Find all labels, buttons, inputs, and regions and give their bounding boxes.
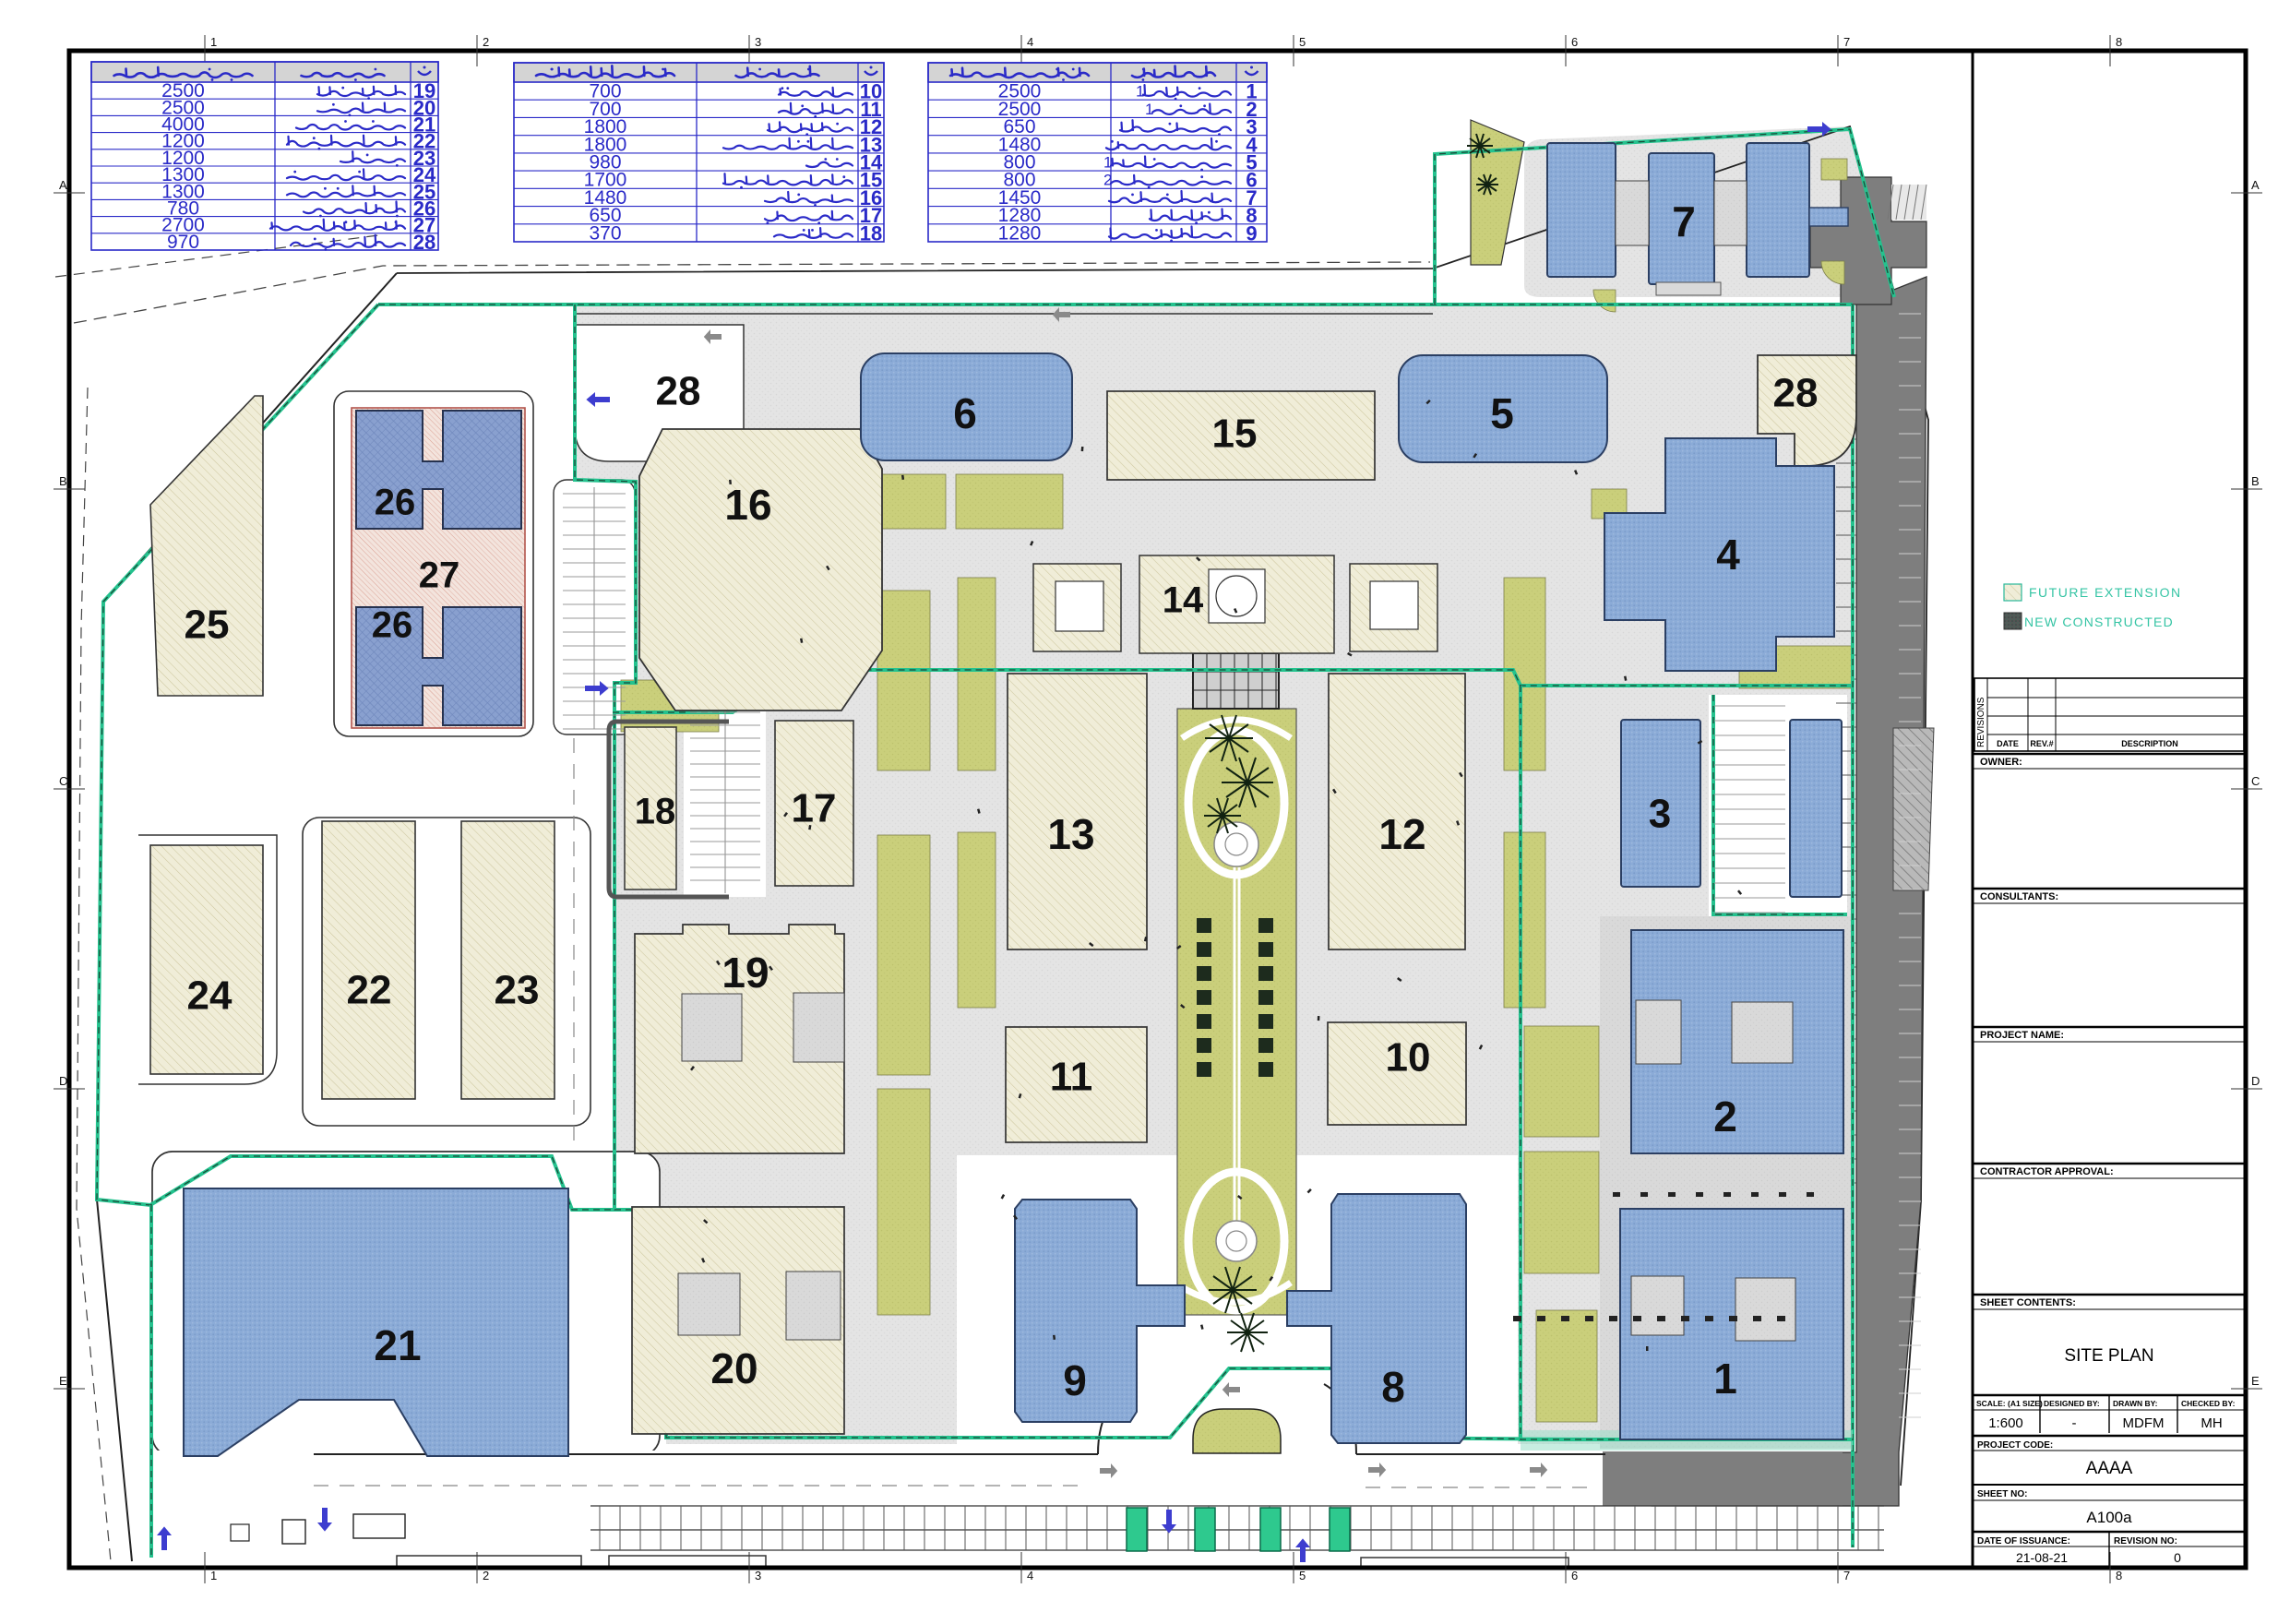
svg-text:SHEET CONTENTS:: SHEET CONTENTS: xyxy=(1980,1297,2076,1308)
svg-text:8: 8 xyxy=(2116,1569,2122,1582)
svg-text:MH: MH xyxy=(2201,1415,2222,1431)
svg-text:1: 1 xyxy=(1145,101,1153,118)
svg-text:2: 2 xyxy=(1103,172,1112,189)
svg-text:25: 25 xyxy=(185,603,230,648)
svg-text:1: 1 xyxy=(1103,154,1112,172)
svg-text:17: 17 xyxy=(792,786,837,831)
svg-text:E: E xyxy=(2251,1374,2260,1388)
svg-text:SCALE: (A1 SIZE): SCALE: (A1 SIZE) xyxy=(1976,1399,2043,1408)
svg-text:5: 5 xyxy=(1490,389,1514,437)
svg-text:28: 28 xyxy=(656,369,701,414)
svg-text:28: 28 xyxy=(1773,371,1819,416)
svg-text:OWNER:: OWNER: xyxy=(1980,757,2022,768)
svg-text:970: 970 xyxy=(167,232,199,253)
svg-text:A100a: A100a xyxy=(2086,1509,2132,1526)
svg-text:28: 28 xyxy=(413,231,435,254)
svg-text:23: 23 xyxy=(495,968,540,1013)
svg-text:3: 3 xyxy=(755,35,761,49)
svg-text:DESIGNED BY:: DESIGNED BY: xyxy=(2044,1399,2100,1408)
svg-text:A: A xyxy=(2251,178,2260,192)
svg-text:1: 1 xyxy=(1713,1355,1737,1403)
svg-text:4: 4 xyxy=(1027,1569,1033,1582)
svg-text:0: 0 xyxy=(2174,1550,2181,1565)
svg-text:AAAA: AAAA xyxy=(2086,1459,2133,1478)
svg-text:3: 3 xyxy=(755,1569,761,1582)
svg-text:8: 8 xyxy=(2116,35,2122,49)
svg-text:4: 4 xyxy=(1716,531,1740,579)
svg-text:PROJECT NAME:: PROJECT NAME: xyxy=(1980,1030,2064,1041)
svg-text:6: 6 xyxy=(1571,1569,1578,1582)
svg-text:10: 10 xyxy=(1386,1035,1431,1081)
svg-text:D: D xyxy=(2251,1074,2260,1088)
svg-text:7: 7 xyxy=(1843,35,1850,49)
svg-text:18: 18 xyxy=(860,221,882,245)
svg-text:B: B xyxy=(2251,474,2260,488)
svg-text:12: 12 xyxy=(1378,810,1425,858)
svg-text:2: 2 xyxy=(483,35,489,49)
svg-text:1: 1 xyxy=(1136,83,1144,101)
svg-text:NEW CONSTRUCTED: NEW CONSTRUCTED xyxy=(2024,615,2174,629)
svg-text:14: 14 xyxy=(1163,580,1204,621)
svg-text:2: 2 xyxy=(483,1569,489,1582)
svg-text:SHEET NO:: SHEET NO: xyxy=(1977,1489,2027,1499)
svg-text:7: 7 xyxy=(1843,1569,1850,1582)
svg-text:A: A xyxy=(59,178,67,192)
svg-text:5: 5 xyxy=(1299,35,1306,49)
svg-text:DRAWN BY:: DRAWN BY: xyxy=(2113,1399,2158,1408)
svg-text:C: C xyxy=(2251,774,2260,788)
svg-text:C: C xyxy=(59,774,67,788)
svg-text:E: E xyxy=(59,1374,67,1388)
svg-text:24: 24 xyxy=(187,973,233,1019)
svg-text:FUTURE EXTENSION: FUTURE EXTENSION xyxy=(2029,585,2182,600)
svg-text:DESCRIPTION: DESCRIPTION xyxy=(2121,739,2178,748)
svg-text:CONSULTANTS:: CONSULTANTS: xyxy=(1980,891,2058,902)
svg-text:2: 2 xyxy=(1713,1093,1737,1140)
svg-text:REVISION NO:: REVISION NO: xyxy=(2114,1536,2177,1546)
svg-text:5: 5 xyxy=(1299,1569,1306,1582)
svg-text:4: 4 xyxy=(1027,35,1033,49)
svg-text:CHECKED BY:: CHECKED BY: xyxy=(2181,1399,2236,1408)
svg-text:21-08-21: 21-08-21 xyxy=(2016,1550,2068,1565)
svg-text:9: 9 xyxy=(1246,221,1257,245)
svg-text:CONTRACTOR APPROVAL:: CONTRACTOR APPROVAL: xyxy=(1980,1166,2114,1177)
svg-text:26: 26 xyxy=(375,483,416,523)
svg-text:8: 8 xyxy=(1381,1363,1405,1411)
svg-text:1: 1 xyxy=(210,35,217,49)
svg-text:370: 370 xyxy=(589,222,621,244)
svg-text:1:600: 1:600 xyxy=(1988,1415,2023,1431)
svg-text:REV.#: REV.# xyxy=(2030,739,2053,748)
svg-text:DATE OF ISSUANCE:: DATE OF ISSUANCE: xyxy=(1977,1536,2070,1546)
svg-text:D: D xyxy=(59,1074,67,1088)
svg-text:3: 3 xyxy=(1649,792,1671,837)
svg-text:1: 1 xyxy=(210,1569,217,1582)
svg-text:27: 27 xyxy=(419,555,460,596)
svg-text:6: 6 xyxy=(1571,35,1578,49)
svg-text:21: 21 xyxy=(374,1321,421,1369)
svg-text:11: 11 xyxy=(1050,1055,1093,1100)
svg-text:7: 7 xyxy=(1672,197,1696,245)
svg-text:PROJECT CODE:: PROJECT CODE: xyxy=(1977,1440,2053,1451)
svg-text:6: 6 xyxy=(953,389,977,437)
svg-text:22: 22 xyxy=(347,968,392,1013)
svg-text:-: - xyxy=(2072,1415,2077,1431)
svg-text:9: 9 xyxy=(1063,1356,1087,1404)
svg-text:18: 18 xyxy=(635,792,676,832)
svg-text:SITE PLAN: SITE PLAN xyxy=(2064,1346,2153,1366)
svg-text:REVISIONS: REVISIONS xyxy=(1976,697,1986,747)
svg-text:B: B xyxy=(59,474,67,488)
svg-text:15: 15 xyxy=(1212,412,1258,457)
svg-text:19: 19 xyxy=(722,949,769,997)
svg-text:13: 13 xyxy=(1047,810,1094,858)
svg-text:MDFM: MDFM xyxy=(2123,1415,2165,1431)
svg-text:20: 20 xyxy=(710,1344,757,1392)
svg-text:26: 26 xyxy=(372,605,413,646)
svg-text:DATE: DATE xyxy=(1997,739,2019,748)
svg-text:1280: 1280 xyxy=(998,222,1042,244)
svg-text:16: 16 xyxy=(724,481,771,529)
